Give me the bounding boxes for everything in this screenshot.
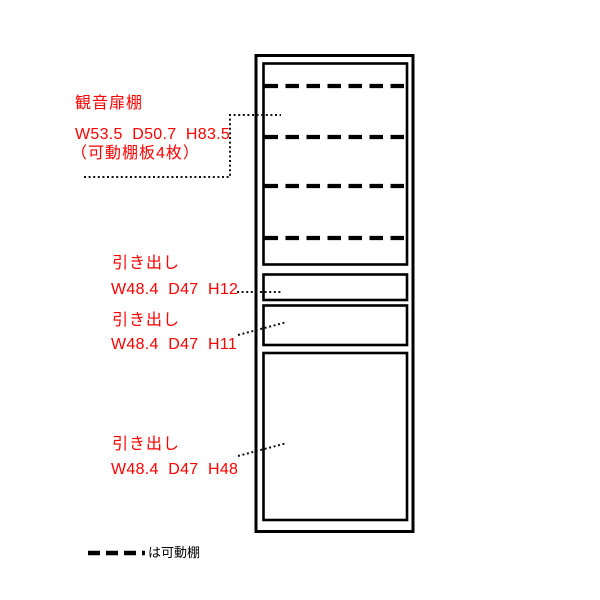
- drawer-bottom-box: [264, 353, 408, 520]
- door-shelf-label-title: 観音扉棚: [75, 95, 143, 113]
- drawer-middle-label-title: 引き出し: [112, 312, 180, 330]
- drawer-middle-box: [264, 306, 408, 346]
- door-shelf-label-note: （可動棚板4枚）: [71, 145, 200, 163]
- drawer-top-label-dimensions: W48.4 D47 H12: [111, 281, 238, 299]
- cabinet-drawing: [0, 0, 600, 600]
- drawer-middle-label-dimensions: W48.4 D47 H11: [111, 336, 237, 354]
- door-shelf-compartment: [264, 64, 408, 265]
- door-shelf-label-dimensions: W53.5 D50.7 H83.5: [75, 126, 230, 144]
- furniture-spec-diagram: 観音扉棚 W53.5 D50.7 H83.5 （可動棚板4枚） 引き出し W48…: [0, 0, 600, 600]
- drawer-bottom-label-title: 引き出し: [112, 436, 180, 454]
- legend-label: は可動棚: [148, 546, 200, 560]
- drawer-top-label-title: 引き出し: [112, 255, 180, 273]
- drawer-bottom-label-dimensions: W48.4 D47 H48: [111, 461, 238, 479]
- drawer-top-box: [264, 275, 408, 301]
- cabinet-outline: [256, 56, 413, 532]
